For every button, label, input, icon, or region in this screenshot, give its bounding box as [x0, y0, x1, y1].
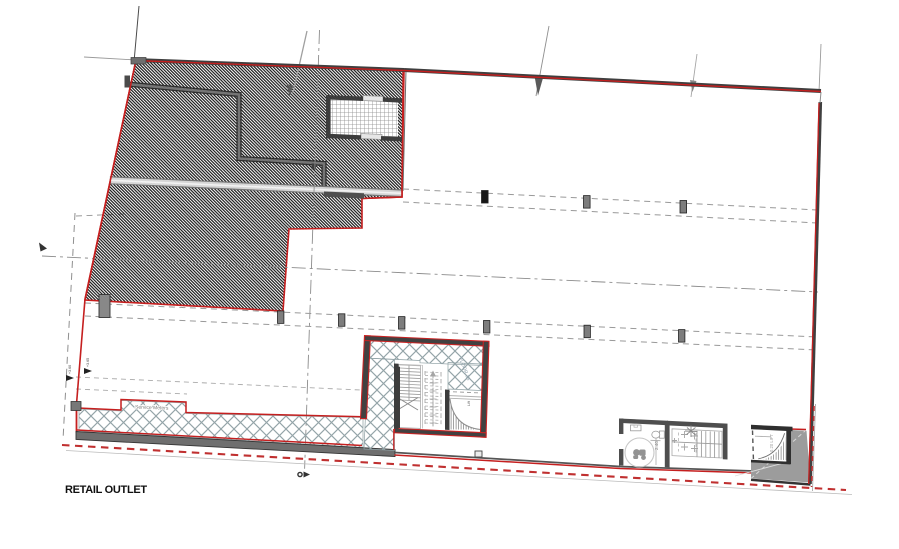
- svg-text:0.20 LIFT: 0.20 LIFT: [769, 434, 774, 452]
- svg-text:2.40: 2.40: [654, 441, 659, 450]
- svg-text:+3.60: +3.60: [68, 365, 72, 374]
- svg-text:+3.65: +3.65: [86, 358, 90, 367]
- svg-text:Service Meters: Service Meters: [135, 405, 169, 412]
- svg-text:RETAIL OUTLET: RETAIL OUTLET: [65, 484, 147, 496]
